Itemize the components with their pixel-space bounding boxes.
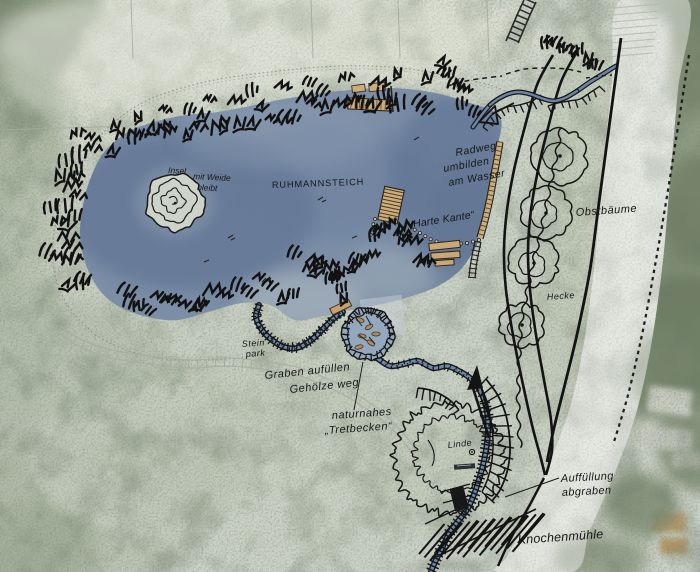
svg-text:Hecke: Hecke — [546, 290, 575, 302]
svg-text:park: park — [244, 348, 265, 359]
svg-text:bleibt: bleibt — [197, 182, 218, 193]
svg-text:Insel: Insel — [168, 165, 188, 176]
